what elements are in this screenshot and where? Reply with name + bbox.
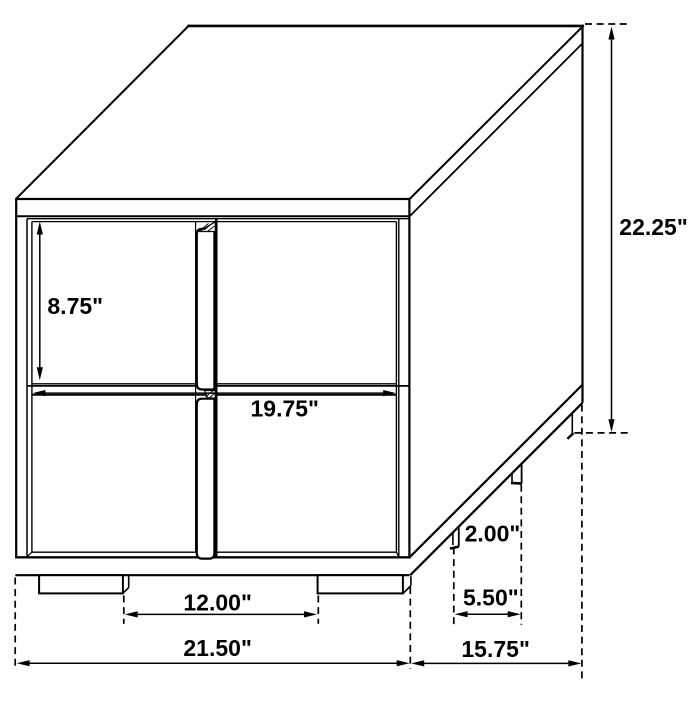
svg-text:2.00": 2.00" xyxy=(465,521,521,547)
svg-text:19.75": 19.75" xyxy=(251,396,319,422)
svg-text:15.75": 15.75" xyxy=(461,636,529,662)
svg-text:8.75": 8.75" xyxy=(47,293,103,319)
svg-text:21.50": 21.50" xyxy=(183,635,251,661)
svg-text:5.50": 5.50" xyxy=(463,585,519,611)
svg-text:22.25": 22.25" xyxy=(619,214,687,240)
svg-text:12.00": 12.00" xyxy=(183,590,251,616)
